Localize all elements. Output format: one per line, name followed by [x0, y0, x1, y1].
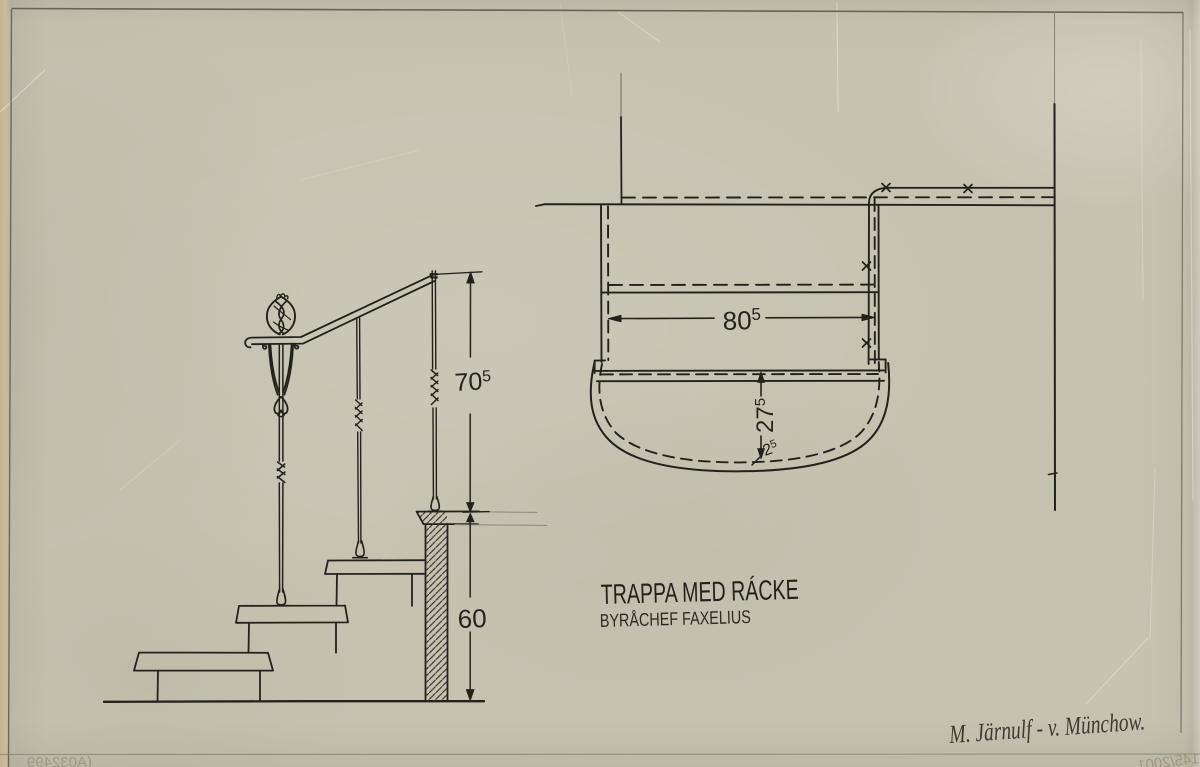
svg-text:275: 275 — [752, 398, 779, 433]
svg-text:(A032499: (A032499 — [27, 754, 92, 767]
svg-text:BYRÅCHEF FAXELIUS: BYRÅCHEF FAXELIUS — [600, 606, 751, 631]
svg-text:60: 60 — [457, 603, 487, 634]
svg-text:705: 705 — [454, 367, 492, 397]
svg-text:805: 805 — [722, 305, 761, 336]
svg-text:25: 25 — [760, 438, 780, 460]
svg-text:M. Järnulf - v. Münchow.: M. Järnulf - v. Münchow. — [948, 706, 1146, 749]
svg-text:TRAPPA MED RÁCKE: TRAPPA MED RÁCKE — [600, 574, 799, 610]
